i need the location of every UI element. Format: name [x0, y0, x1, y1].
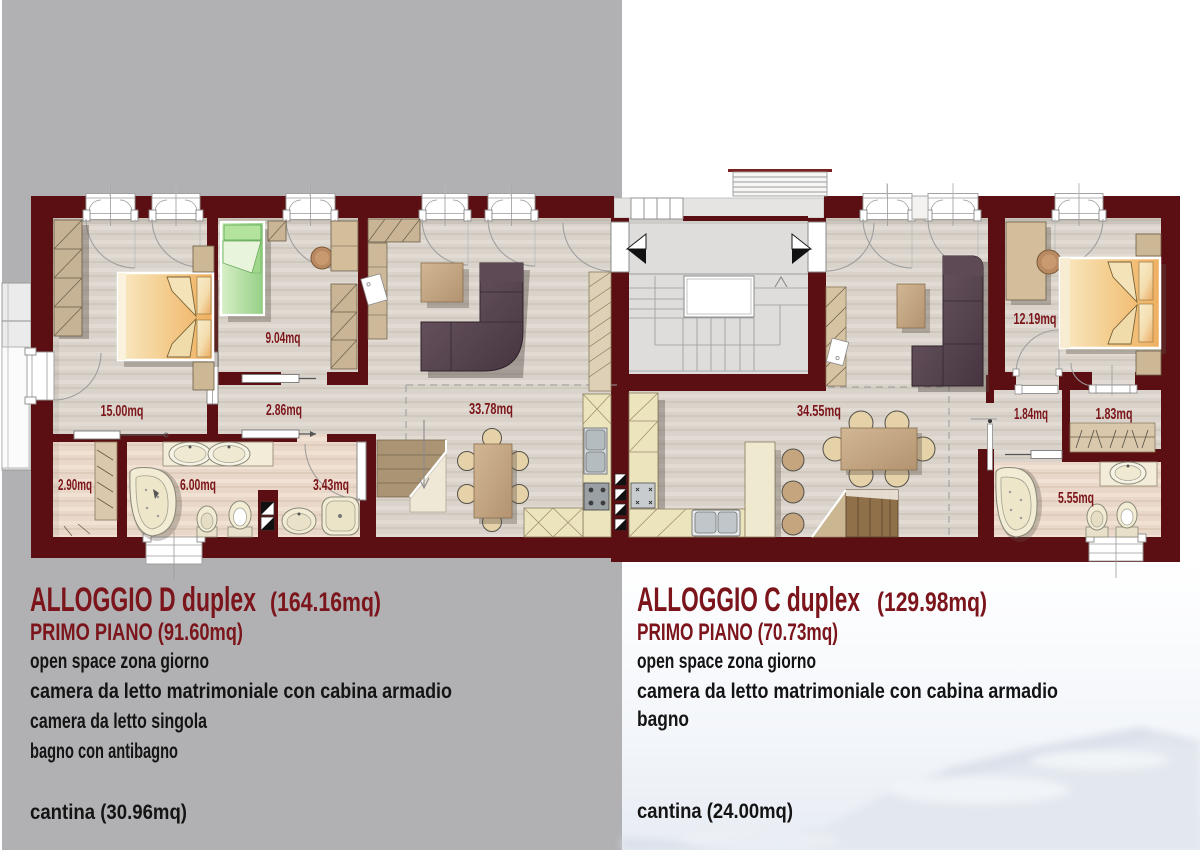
svg-text:(129.98mq): (129.98mq): [877, 587, 987, 617]
svg-text:1.84mq: 1.84mq: [1014, 406, 1048, 423]
svg-text:(164.16mq): (164.16mq): [270, 587, 381, 617]
svg-text:5.55mq: 5.55mq: [1058, 490, 1094, 507]
svg-text:bagno con antibagno: bagno con antibagno: [30, 740, 178, 763]
svg-text:camera da letto singola: camera da letto singola: [30, 710, 207, 733]
svg-text:33.78mq: 33.78mq: [469, 401, 513, 418]
svg-text:cantina (24.00mq): cantina (24.00mq): [637, 800, 793, 823]
svg-text:9.04mq: 9.04mq: [266, 330, 301, 347]
svg-text:camera da letto matrimoniale c: camera da letto matrimoniale con cabina …: [30, 680, 452, 703]
svg-text:bagno: bagno: [637, 708, 689, 731]
svg-text:34.55mq: 34.55mq: [797, 403, 841, 420]
svg-text:12.19mq: 12.19mq: [1014, 311, 1057, 328]
svg-text:PRIMO PIANO (91.60mq): PRIMO PIANO (91.60mq): [30, 619, 243, 646]
svg-text:cantina (30.96mq): cantina (30.96mq): [30, 801, 187, 824]
svg-text:open space zona giorno: open space zona giorno: [637, 650, 816, 673]
svg-text:open space zona giorno: open space zona giorno: [30, 650, 209, 673]
svg-text:1.83mq: 1.83mq: [1096, 406, 1133, 423]
svg-text:camera da letto matrimoniale c: camera da letto matrimoniale con cabina …: [637, 680, 1058, 703]
svg-text:ALLOGGIO C duplex: ALLOGGIO C duplex: [637, 581, 860, 619]
svg-text:2.90mq: 2.90mq: [58, 477, 92, 494]
svg-text:6.00mq: 6.00mq: [180, 477, 216, 494]
svg-text:2.86mq: 2.86mq: [266, 402, 302, 419]
svg-text:3.43mq: 3.43mq: [313, 477, 349, 494]
svg-text:ALLOGGIO D duplex: ALLOGGIO D duplex: [30, 581, 256, 619]
svg-text:15.00mq: 15.00mq: [101, 403, 144, 420]
svg-text:PRIMO PIANO (70.73mq): PRIMO PIANO (70.73mq): [637, 619, 838, 646]
